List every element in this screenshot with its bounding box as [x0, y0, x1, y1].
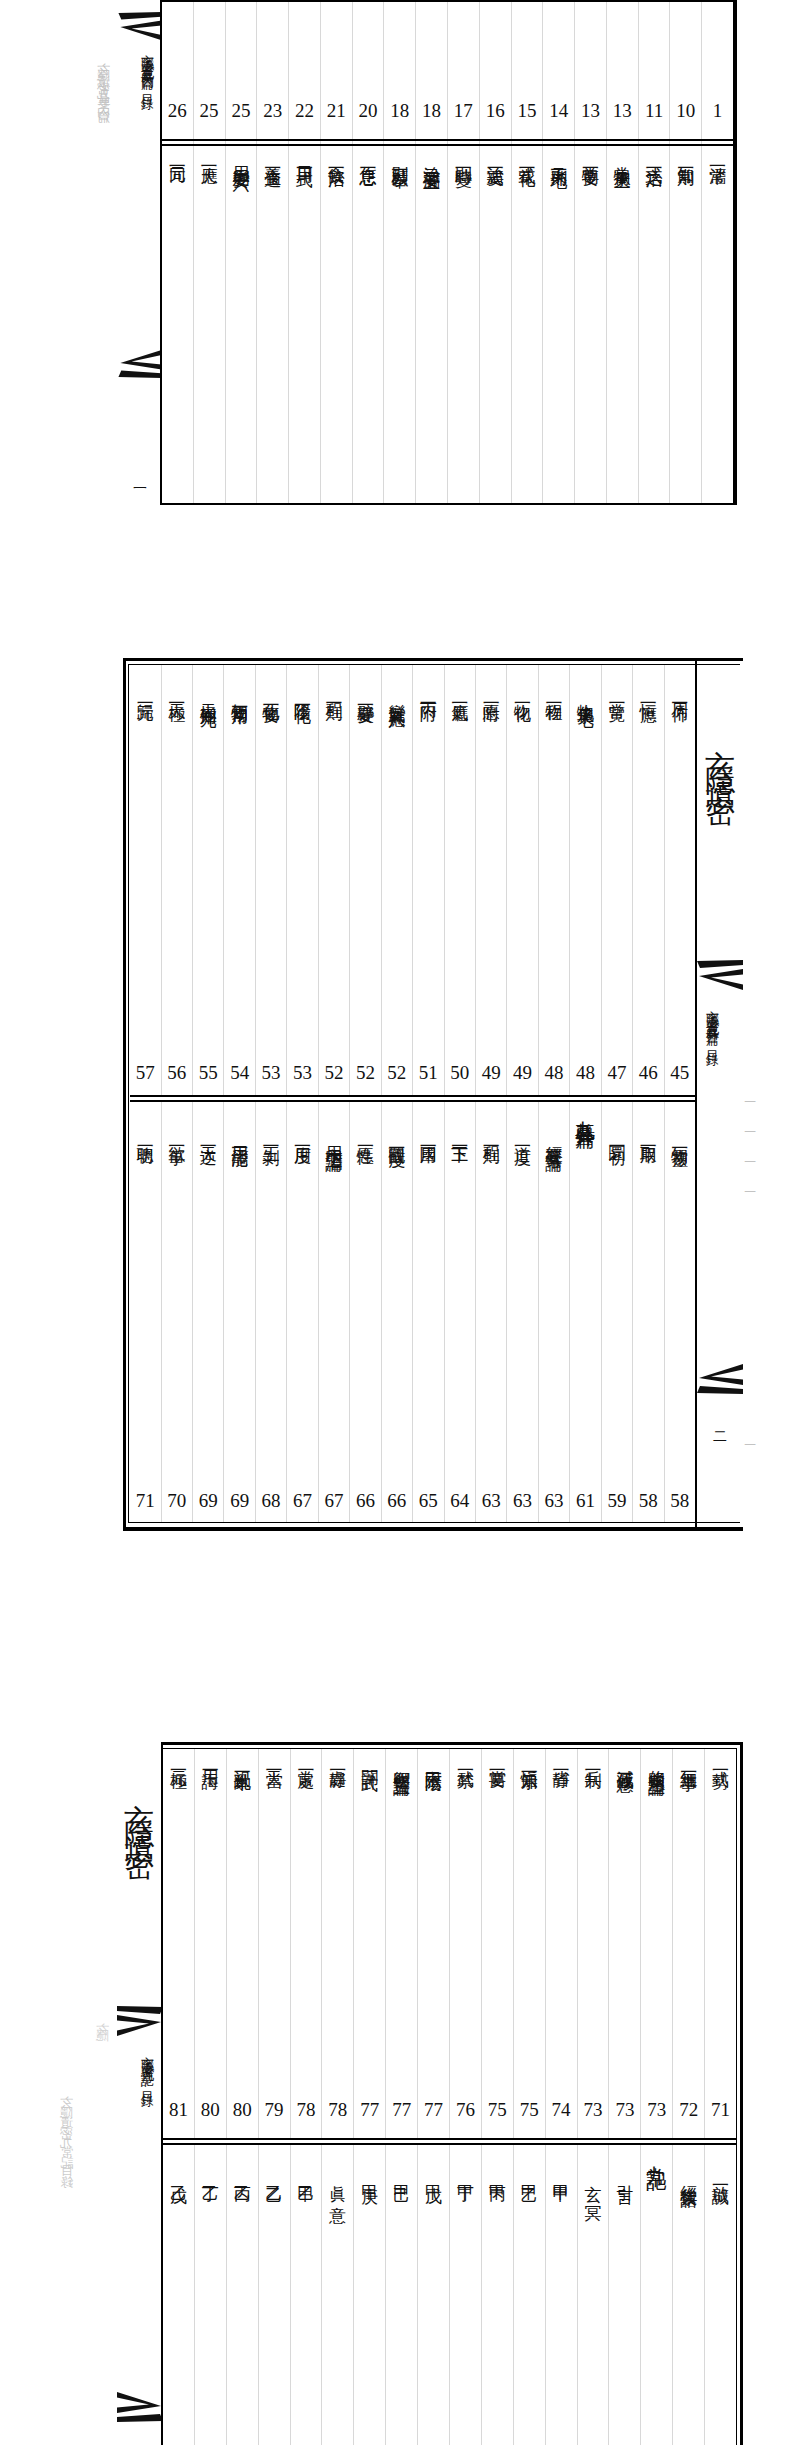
- chapter-title: 式常化一: [518, 153, 535, 161]
- chapter-title: 圜初一: [608, 1133, 625, 1139]
- chapter-title: 歸元一: [137, 690, 154, 696]
- chapter-title: 王剝一: [263, 1133, 280, 1139]
- page-number: 75: [514, 2093, 545, 2127]
- page-number: 68: [256, 1484, 286, 1518]
- toc-column: 77六甲陰陽一: [417, 1749, 449, 2138]
- chapter-title: 九眞要外篇: [575, 1105, 595, 1115]
- chapter-title: 取用一: [640, 1133, 657, 1139]
- chapter-title: 知物常用一: [231, 690, 248, 700]
- page-number: 77: [418, 2093, 449, 2127]
- box-border-top: [162, 0, 733, 2]
- chapter-title: 式之治一: [646, 153, 663, 161]
- chapter-title: 用誨一: [202, 1757, 219, 1763]
- toc-column: 16治式要一: [479, 2, 511, 503]
- toc-column: 52程則一: [318, 665, 349, 1095]
- fold-divider: [160, 0, 162, 505]
- toc-column: 乙戊: [163, 2145, 194, 2445]
- page-number: 18: [416, 94, 447, 128]
- page-number: 80: [227, 2093, 258, 2127]
- page-number: 56: [162, 1056, 192, 1090]
- page-number: 23: [257, 94, 288, 128]
- toc-column: 47常覽一: [601, 665, 632, 1095]
- toc-column: 66觀國度一: [381, 1102, 412, 1522]
- page-number: 16: [480, 94, 511, 128]
- toc-column: 46恒應一: [632, 665, 663, 1095]
- double-rule: [162, 139, 733, 146]
- chapter-title: 甲丁: [457, 2172, 474, 2176]
- chapter-title: 知物靈一: [671, 1133, 688, 1141]
- page-number: 48: [570, 1056, 600, 1090]
- toc-column: 59圜初一: [601, 1102, 632, 1522]
- fold-divider: [695, 661, 697, 1527]
- toc-column: 乙丙: [226, 2145, 258, 2445]
- bleed-through-text: 玄隱: [96, 2012, 109, 2024]
- toc-column: 53陰陽化一: [286, 665, 317, 1095]
- chapter-title: 甲戊: [425, 2172, 442, 2176]
- chapter-title: 周佈一: [671, 690, 688, 696]
- chapter-title: 處靜一: [329, 1757, 346, 1763]
- toc-column: 25用變則要六: [225, 2, 257, 503]
- page-number: 22: [289, 94, 320, 128]
- fishtail-icon: [117, 2390, 163, 2422]
- toc-column: 53化物要一: [255, 665, 286, 1095]
- toc-column: 甲丁: [449, 2145, 481, 2445]
- fishtail-icon: [118, 348, 162, 378]
- folio-number: 一: [118, 480, 162, 498]
- chapter-title: 禦明任賢論三: [393, 1757, 410, 1769]
- toc-column: 63經要眞常論一: [538, 1102, 569, 1522]
- chapter-title: 乙丙: [234, 2172, 251, 2176]
- chapter-title: 甲庚: [361, 2172, 378, 2176]
- page-number: 57: [130, 1056, 160, 1090]
- chapter-title: 禍亂本一: [234, 1757, 251, 1765]
- chapter-title: 九常記: [647, 2150, 667, 2156]
- toc-column: 71聰明一: [130, 1102, 160, 1522]
- box-border-right-inner: [736, 1748, 737, 2445]
- chapter-title: 元同一: [169, 153, 186, 159]
- toc-column: 77禦明任賢論三: [385, 1749, 417, 2138]
- toc-column: 15式常化一: [511, 2, 543, 503]
- toc-column: 75愼知示一: [513, 1749, 545, 2138]
- chapter-title: 天極知用九: [200, 690, 217, 700]
- chapter-title: 乙戊: [170, 2172, 187, 2176]
- box-border-top-inner: [161, 1748, 737, 1749]
- fold-strip-title: 玄隱遺密・九眞要外篇 目錄: [706, 1000, 719, 1046]
- page-number: 76: [450, 2093, 481, 2127]
- toc-column: 73兵制一: [577, 1749, 609, 2138]
- page-number: 77: [386, 2093, 417, 2127]
- toc-column: 14承天則地一: [542, 2, 574, 503]
- page-number: 67: [287, 1484, 317, 1518]
- toc-column: 67度用一: [286, 1102, 317, 1522]
- toc-column: 1瀒常一: [701, 2, 733, 503]
- chapter-title: 乙甲: [297, 2172, 314, 2176]
- toc-column: 61九眞要外篇: [569, 1102, 600, 1522]
- bleed-through-text: 一一一一: [744, 1095, 756, 1215]
- toc-column: 引言: [608, 2145, 640, 2445]
- chapter-title: 甲乙: [521, 2172, 538, 2176]
- fishtail-icon: [118, 12, 162, 42]
- chapter-title: 悳性一: [357, 1133, 374, 1139]
- toc-column: 66悳性一: [349, 1102, 380, 1522]
- page-number: 10: [670, 94, 701, 128]
- page-number: 49: [507, 1056, 537, 1090]
- toc-column: 67用卞明瀒論二: [318, 1102, 349, 1522]
- page-number: 58: [665, 1484, 695, 1518]
- s3-upper-band: 71式勢一72無細事一73修明悳用論三73減伐修悳一73兵制一74省靜一75愼知…: [163, 1749, 736, 2138]
- chapter-title: 應天一: [201, 153, 218, 159]
- box-border-bottom: [160, 503, 737, 505]
- chapter-title: 甲丙: [489, 2172, 506, 2176]
- toc-column: 68王剝一: [255, 1102, 286, 1522]
- chapter-title: 愼知示一: [521, 1757, 538, 1765]
- page-number: 52: [382, 1056, 412, 1090]
- chapter-title: 程則一: [483, 1133, 500, 1139]
- page-number: 15: [512, 94, 543, 128]
- chapter-title: 用卞明瀒論二: [325, 1133, 342, 1145]
- chapter-title: 六甲陰陽一: [425, 1757, 442, 1767]
- chapter-title: 乙乙: [266, 2172, 283, 2176]
- page-number: 64: [445, 1484, 475, 1518]
- fishtail-icon: [117, 2006, 163, 2038]
- page-number: 45: [665, 1056, 695, 1090]
- bleed-through-text: 玄隱遺密九常記目錄: [60, 2085, 73, 2175]
- box-border-top-inner: [128, 664, 740, 665]
- toc-column: 48物程一: [538, 665, 569, 1095]
- chapter-title: 甲甲: [553, 2172, 570, 2176]
- chapter-title: 度用一: [294, 1133, 311, 1139]
- page-number: 73: [609, 2093, 640, 2127]
- toc-column: 11式之治一: [638, 2, 670, 503]
- toc-column: 74省靜一: [545, 1749, 577, 2138]
- chapter-title: 物化一: [514, 690, 531, 696]
- chapter-title: 物程一: [546, 690, 563, 696]
- toc-column: 乙乙: [258, 2145, 290, 2445]
- page-number: 51: [413, 1056, 443, 1090]
- book-title-large: 玄隱遺密: [124, 1780, 154, 1840]
- box-border-left: [123, 658, 126, 1531]
- page-number: 18: [384, 94, 415, 128]
- page-number: 70: [162, 1484, 192, 1518]
- chapter-title: 常物承天三: [614, 153, 631, 163]
- fold-strip-title: 玄隱遺密・九常記 目錄: [141, 2046, 154, 2087]
- chapter-title: 國用一: [420, 1133, 437, 1139]
- page-number: 49: [476, 1056, 506, 1090]
- toc-column: 76武禁一: [449, 1749, 481, 2138]
- bleed-through-text: 玄隱遺密九眞要內篇: [97, 52, 110, 106]
- chapter-title: 甲己: [393, 2172, 410, 2176]
- box-border-right: [733, 0, 737, 505]
- toc-column: 18治忌瀒要五: [415, 2, 447, 503]
- toc-column: 玄 冥: [577, 2145, 609, 2445]
- toc-column: 55天極知用九: [192, 665, 223, 1095]
- chapter-title: 天逆一: [200, 1133, 217, 1139]
- toc-column: 25應天一: [193, 2, 225, 503]
- chapter-title: 天當一: [266, 1757, 283, 1763]
- toc-column: 甲丙: [481, 2145, 513, 2445]
- toc-column: 57歸元一: [130, 665, 160, 1095]
- toc-column: 75當要一: [481, 1749, 513, 2138]
- page-number: 21: [321, 94, 352, 128]
- toc-column: 17則時變一: [447, 2, 479, 503]
- toc-column: 70欲事一: [161, 1102, 192, 1522]
- page-number: 73: [578, 2093, 609, 2127]
- toc-column: 13常物承天三: [606, 2, 638, 503]
- double-rule: [163, 2138, 736, 2145]
- page-number: 75: [482, 2093, 513, 2127]
- chapter-title: 治忌瀒要五: [423, 153, 440, 163]
- toc-column: 78處靜一: [321, 1749, 353, 2138]
- chapter-title: 用變則要六: [232, 153, 249, 163]
- page-number: 14: [543, 94, 574, 128]
- toc-column: 49悳附一: [475, 665, 506, 1095]
- chapter-title: 天極一: [168, 690, 185, 696]
- toc-column: 69天逆一: [192, 1102, 223, 1522]
- chapter-title: 當要一: [489, 1757, 506, 1763]
- page-number: 46: [633, 1056, 663, 1090]
- page-number: 52: [319, 1056, 349, 1090]
- toc-column: 58取用一: [632, 1102, 663, 1522]
- toc-column: 79天當一: [258, 1749, 290, 2138]
- chapter-title: 乙丁: [202, 2172, 219, 2176]
- chapter-title: 欲事一: [168, 1133, 185, 1139]
- toc-column: 73修明悳用論三: [640, 1749, 672, 2138]
- chapter-title: 日用式一: [296, 153, 313, 161]
- chapter-title: 悳附一: [483, 690, 500, 696]
- toc-column: 50應氣一: [444, 665, 475, 1095]
- page-number: 67: [319, 1484, 349, 1518]
- page-number: 81: [163, 2093, 194, 2127]
- page-number: 69: [224, 1484, 254, 1518]
- s1-band: 1瀒常一10知常則一11式之治一13常物承天三13常物要一14承天則地一15式常…: [162, 2, 733, 503]
- box-border-left-inner: [128, 664, 129, 1523]
- page-number: 52: [350, 1056, 380, 1090]
- double-rule: [130, 1095, 695, 1102]
- toc-column: 63道度一: [506, 1102, 537, 1522]
- chapter-title: 觀國度一: [388, 1133, 405, 1141]
- folio-number: 二: [697, 1428, 743, 1446]
- chapter-title: 式勢一: [712, 1757, 729, 1763]
- chapter-title: 則精以奉一: [391, 153, 408, 163]
- book-title-large: 玄隱遺密: [705, 726, 735, 786]
- chapter-title: 丙附一: [420, 690, 437, 696]
- page-number: 71: [705, 2093, 736, 2127]
- page-number: 80: [195, 2093, 226, 2127]
- toc-column: 51丙附一: [412, 665, 443, 1095]
- box-border-bottom: [123, 1527, 743, 1531]
- box-border-right: [740, 1742, 743, 2445]
- chapter-title: 常覽一: [608, 690, 625, 696]
- toc-column: 甲己: [385, 2145, 417, 2445]
- toc-column: 九常記: [640, 2145, 672, 2445]
- toc-column: 80用誨一: [194, 1749, 226, 2138]
- toc-column: 64王下一: [444, 1102, 475, 1522]
- toc-column: 45周佈一: [664, 665, 695, 1095]
- toc-column: 56天極一: [161, 665, 192, 1095]
- page-number: 69: [193, 1484, 223, 1518]
- toc-column: 72無細事一: [672, 1749, 704, 2138]
- chapter-title: 兵制一: [584, 1757, 601, 1763]
- toc-column: 乙丁: [194, 2145, 226, 2445]
- page-number: 13: [575, 94, 606, 128]
- page-number: 17: [448, 94, 479, 128]
- toc-column: 13常物要一: [574, 2, 606, 503]
- chapter-title: 食飲治一: [328, 153, 345, 161]
- toc-column: 甲甲: [545, 2145, 577, 2445]
- page-number: 78: [322, 2093, 353, 2127]
- chapter-title: 瀒常一: [709, 153, 726, 159]
- s2-lower-band: 58知物靈一58取用一59圜初一61九眞要外篇63經要眞常論一63道度一63程則…: [130, 1102, 695, 1522]
- page-number: 25: [194, 94, 225, 128]
- toc-column: 71式勢一: [704, 1749, 736, 2138]
- page-number: 61: [570, 1484, 600, 1518]
- page-number: 26: [162, 94, 193, 128]
- chapter-title: 道度一: [514, 1133, 531, 1139]
- chapter-title: 物化承天七: [577, 690, 594, 700]
- chapter-title: 養生適一: [264, 153, 281, 161]
- page-number: 63: [507, 1484, 537, 1518]
- chapter-title: 程則一: [325, 690, 342, 696]
- page-number: 47: [602, 1056, 632, 1090]
- page-number: 79: [259, 2093, 290, 2127]
- toc-column: 啟誠一: [704, 2145, 736, 2445]
- chapter-title: 知常則一: [677, 153, 694, 161]
- toc-column: 49物化一: [506, 665, 537, 1095]
- toc-column: 52變辟氣應八: [381, 665, 412, 1095]
- page-number: 77: [354, 2093, 385, 2127]
- chapter-title: 用瀒能一: [231, 1133, 248, 1141]
- chapter-title: 元極一: [170, 1757, 187, 1763]
- chapter-title: 眞 意: [329, 2172, 346, 2195]
- page-number: 58: [633, 1484, 663, 1518]
- chapter-title: 常處一: [297, 1757, 314, 1763]
- page-number: 73: [641, 2093, 672, 2127]
- toc-column: 經後絮語: [672, 2145, 704, 2445]
- fold-strip-title: 玄隱遺密・九眞要內篇 目錄: [141, 44, 154, 90]
- toc-column: 63程則一: [475, 1102, 506, 1522]
- page-number: 55: [193, 1056, 223, 1090]
- chapter-title: 闈計式一: [361, 1757, 378, 1765]
- page-number: 48: [539, 1056, 569, 1090]
- toc-column: 21食飲治一: [320, 2, 352, 503]
- toc-column: 20作息忌一: [352, 2, 384, 503]
- chapter-title: 王下一: [451, 1133, 468, 1139]
- chapter-title: 修明悳用論三: [648, 1757, 665, 1769]
- toc-column: 77闈計式一: [353, 1749, 385, 2138]
- s2-upper-band: 45周佈一46恒應一47常覽一48物化承天七48物程一49物化一49悳附一50應…: [130, 665, 695, 1095]
- chapter-title: 變辟氣應八: [388, 690, 405, 700]
- fishtail-icon: [697, 960, 743, 992]
- toc-column: 10知常則一: [669, 2, 701, 503]
- page-number: 66: [350, 1484, 380, 1518]
- chapter-title: 作息忌一: [360, 153, 377, 161]
- chapter-title: 經後絮語: [680, 2172, 697, 2180]
- chapter-title: 常物要一: [582, 153, 599, 161]
- page-number: 59: [602, 1484, 632, 1518]
- page-number: 54: [224, 1056, 254, 1090]
- chapter-title: 恒應一: [640, 690, 657, 696]
- toc-column: 甲戊: [417, 2145, 449, 2445]
- chapter-title: 武禁一: [457, 1757, 474, 1763]
- chapter-title: 應氣一: [451, 690, 468, 696]
- box-border-top: [123, 658, 743, 661]
- toc-column: 眞 意: [321, 2145, 353, 2445]
- chapter-title: 化物要一: [263, 690, 280, 698]
- chapter-title: 引言: [616, 2172, 633, 2176]
- s3-lower-band: 啟誠一經後絮語九常記引言玄 冥甲甲甲乙甲丙甲丁甲戊甲己甲庚眞 意乙甲乙乙乙丙乙丁…: [163, 2145, 736, 2445]
- page-number: 1: [702, 94, 733, 128]
- page-number: 74: [546, 2093, 577, 2127]
- page-number: 20: [353, 94, 384, 128]
- chapter-title: 經要眞常論一: [546, 1133, 563, 1145]
- chapter-title: 減伐修悳一: [616, 1757, 633, 1767]
- book-toc-scan: 玄隱遺密九眞要內篇 玄隱遺密・九眞要內篇 目錄 一 1瀒常一10知常則一11式之…: [0, 0, 800, 2445]
- chapter-title: 辟變要一: [357, 690, 374, 698]
- page-number: 72: [673, 2093, 704, 2127]
- toc-column: 65國用一: [412, 1102, 443, 1522]
- page-number: 25: [226, 94, 257, 128]
- toc-column: 22日用式一: [288, 2, 320, 503]
- page-number: 63: [539, 1484, 569, 1518]
- toc-column: 23養生適一: [256, 2, 288, 503]
- toc-column: 52辟變要一: [349, 665, 380, 1095]
- toc-column: 48物化承天七: [569, 665, 600, 1095]
- bleed-through-text: 一: [744, 1438, 756, 1444]
- toc-column: 73減伐修悳一: [608, 1749, 640, 2138]
- toc-column: 乙甲: [290, 2145, 322, 2445]
- chapter-title: 聰明一: [137, 1133, 154, 1139]
- toc-column: 78常處一: [290, 1749, 322, 2138]
- toc-column: 80禍亂本一: [226, 1749, 258, 2138]
- page-number: 53: [256, 1056, 286, 1090]
- toc-column: 69用瀒能一: [223, 1102, 254, 1522]
- chapter-title: 玄 冥: [584, 2172, 601, 2195]
- fishtail-icon: [697, 1362, 743, 1394]
- chapter-title: 承天則地一: [550, 153, 567, 163]
- page-number: 13: [607, 94, 638, 128]
- chapter-title: 省靜一: [553, 1757, 570, 1763]
- toc-column: 甲庚: [353, 2145, 385, 2445]
- toc-column: 81元極一: [163, 1749, 194, 2138]
- fold-divider: [161, 1742, 163, 2445]
- box-border-bottom-inner: [128, 1522, 740, 1523]
- page-number: 11: [639, 94, 670, 128]
- page-number: 66: [382, 1484, 412, 1518]
- chapter-title: 陰陽化一: [294, 690, 311, 698]
- chapter-title: 啟誠一: [712, 2172, 729, 2178]
- chapter-title: 治式要一: [487, 153, 504, 161]
- page-number: 63: [476, 1484, 506, 1518]
- page-number: 71: [130, 1484, 160, 1518]
- page-number: 78: [291, 2093, 322, 2127]
- chapter-title: 無細事一: [680, 1757, 697, 1765]
- toc-column: 54知物常用一: [223, 665, 254, 1095]
- page-number: 65: [413, 1484, 443, 1518]
- toc-column: 58知物靈一: [664, 1102, 695, 1522]
- page-number: 53: [287, 1056, 317, 1090]
- toc-column: 18則精以奉一: [383, 2, 415, 503]
- page-number: 50: [445, 1056, 475, 1090]
- toc-column: 甲乙: [513, 2145, 545, 2445]
- chapter-title: 則時變一: [455, 153, 472, 161]
- toc-column: 26元同一: [162, 2, 193, 503]
- box-border-top: [161, 1742, 743, 1745]
